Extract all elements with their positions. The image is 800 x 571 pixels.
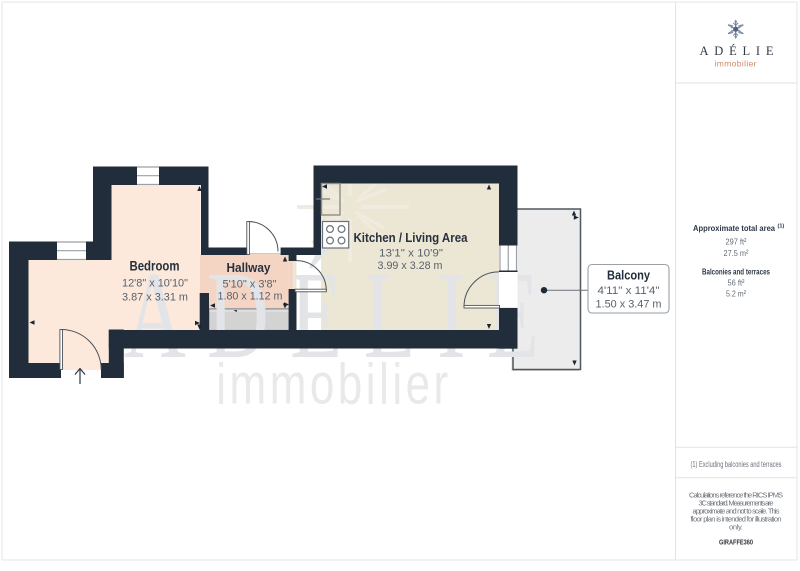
svg-text:Balconies and terraces: Balconies and terraces — [702, 267, 770, 277]
svg-text:1.80 x 1.12 m: 1.80 x 1.12 m — [218, 291, 283, 303]
svg-text:5.2 m²: 5.2 m² — [726, 289, 746, 299]
svg-text:GIRAFFE360: GIRAFFE360 — [719, 538, 753, 547]
svg-text:13'1" x 10'9": 13'1" x 10'9" — [379, 248, 443, 260]
svg-text:only.: only. — [729, 523, 743, 532]
svg-text:56 ft²: 56 ft² — [728, 278, 745, 288]
svg-text:Approximate total area: Approximate total area — [693, 223, 775, 233]
svg-text:27.5 m²: 27.5 m² — [724, 248, 749, 258]
svg-text:immobilier: immobilier — [715, 59, 757, 69]
svg-text:4'11" x 11'4": 4'11" x 11'4" — [598, 285, 660, 297]
svg-text:12'8" x 10'10": 12'8" x 10'10" — [122, 278, 188, 290]
svg-text:(1) Excluding balconies and te: (1) Excluding balconies and terraces — [691, 460, 782, 469]
svg-text:Bedroom: Bedroom — [130, 259, 180, 274]
svg-text:(1): (1) — [778, 224, 785, 230]
svg-text:3.99 x 3.28 m: 3.99 x 3.28 m — [378, 260, 443, 272]
svg-text:immobilier: immobilier — [216, 352, 451, 416]
svg-text:Hallway: Hallway — [227, 260, 272, 275]
svg-text:Kitchen / Living Area: Kitchen / Living Area — [354, 231, 469, 245]
svg-text:ADÉLIE: ADÉLIE — [700, 44, 774, 58]
svg-text:Balcony: Balcony — [607, 269, 650, 283]
svg-text:297 ft²: 297 ft² — [726, 237, 747, 247]
svg-text:5'10" x 3'8": 5'10" x 3'8" — [223, 279, 277, 291]
svg-text:1.50 x 3.47 m: 1.50 x 3.47 m — [596, 299, 662, 311]
svg-text:3.87 x 3.31 m: 3.87 x 3.31 m — [122, 292, 188, 304]
